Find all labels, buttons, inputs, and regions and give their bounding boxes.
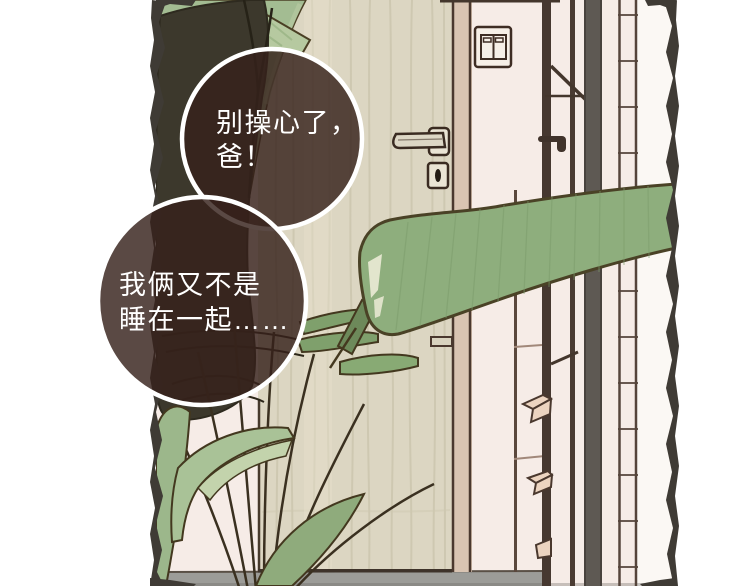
bubble1-text-line1: 别操心了， bbox=[216, 108, 359, 138]
bubble2-text-line2: 睡在一起…… bbox=[119, 305, 290, 335]
speech-bubble-2 bbox=[98, 197, 306, 405]
light-switch-icon bbox=[475, 27, 511, 67]
keyhole-icon bbox=[428, 163, 448, 188]
bubble2-text-line1: 我俩又不是 bbox=[119, 270, 262, 300]
door-hinge bbox=[431, 337, 452, 346]
bubble1-text-line2: 爸！ bbox=[216, 142, 273, 172]
gray-pillar bbox=[584, 0, 602, 586]
comic-page: 别操心了， 爸！ 我俩又不是 睡在一起…… bbox=[0, 0, 750, 586]
comic-panel-illustration: 别操心了， 爸！ 我俩又不是 睡在一起…… bbox=[0, 0, 750, 586]
